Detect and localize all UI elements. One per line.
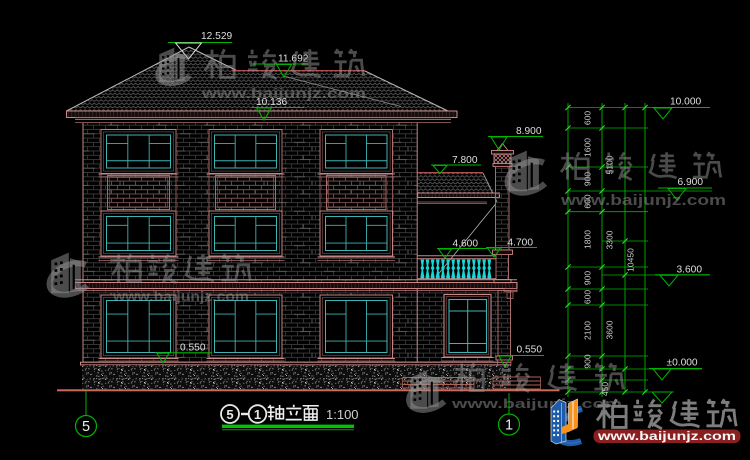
svg-text:3.600: 3.600 xyxy=(677,265,703,276)
svg-text:900: 900 xyxy=(583,271,593,285)
svg-text:1: 1 xyxy=(505,418,513,434)
svg-text:1: 1 xyxy=(254,407,261,422)
svg-text:8.900: 8.900 xyxy=(516,126,542,137)
svg-text:www.baijunjz.com: www.baijunjz.com xyxy=(201,85,366,101)
svg-text:1800: 1800 xyxy=(583,230,593,249)
svg-text:±0.000: ±0.000 xyxy=(667,358,698,369)
svg-text:1600: 1600 xyxy=(583,138,593,157)
svg-text:900: 900 xyxy=(583,354,593,368)
svg-text:5: 5 xyxy=(82,419,90,435)
svg-text:10450: 10450 xyxy=(626,248,636,272)
svg-text:www.baijunjz.com: www.baijunjz.com xyxy=(112,288,249,304)
svg-text:600: 600 xyxy=(583,290,593,304)
svg-text:1:100: 1:100 xyxy=(326,407,359,422)
svg-text:4.700: 4.700 xyxy=(508,238,534,249)
svg-text:7.800: 7.800 xyxy=(452,155,478,166)
svg-text:www.baijunjz.com: www.baijunjz.com xyxy=(597,431,736,443)
svg-text:12.529: 12.529 xyxy=(201,31,232,42)
svg-text:4.600: 4.600 xyxy=(453,239,479,250)
svg-text:0.550: 0.550 xyxy=(180,343,206,354)
svg-text:600: 600 xyxy=(583,111,593,125)
svg-text:6.900: 6.900 xyxy=(678,177,704,188)
svg-text:2100: 2100 xyxy=(583,321,593,340)
svg-text:0.550: 0.550 xyxy=(517,345,543,356)
svg-text:www.baijunjz.com: www.baijunjz.com xyxy=(560,193,726,209)
svg-text:3300: 3300 xyxy=(605,230,615,249)
svg-text:5: 5 xyxy=(226,407,233,422)
svg-text:www.baijunjz.com: www.baijunjz.com xyxy=(450,396,622,411)
svg-text:10.000: 10.000 xyxy=(670,97,701,108)
svg-text:3600: 3600 xyxy=(605,320,615,339)
